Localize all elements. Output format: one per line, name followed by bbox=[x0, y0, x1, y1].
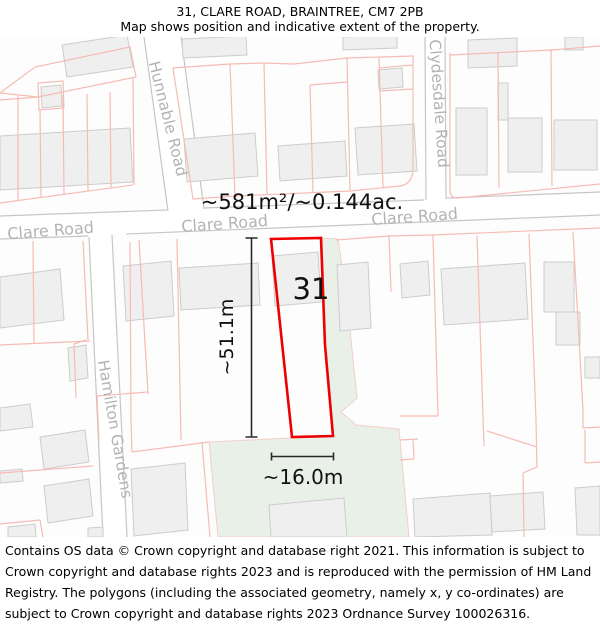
map-canvas: 31 ~51.1m ~16.0m ~581m²/~0.144ac. Clare … bbox=[0, 37, 600, 537]
plot-number-label: 31 bbox=[293, 272, 330, 306]
header: 31, CLARE ROAD, BRAINTREE, CM7 2PB Map s… bbox=[0, 0, 600, 37]
page-subtitle: Map shows position and indicative extent… bbox=[0, 19, 600, 34]
property-map: 31 ~51.1m ~16.0m ~581m²/~0.144ac. Clare … bbox=[0, 37, 600, 537]
width-dimension-label: ~16.0m bbox=[263, 465, 344, 489]
copyright-notice: Contains OS data © Crown copyright and d… bbox=[0, 538, 600, 624]
height-dimension-label: ~51.1m bbox=[216, 299, 238, 376]
page-title: 31, CLARE ROAD, BRAINTREE, CM7 2PB bbox=[0, 0, 600, 19]
